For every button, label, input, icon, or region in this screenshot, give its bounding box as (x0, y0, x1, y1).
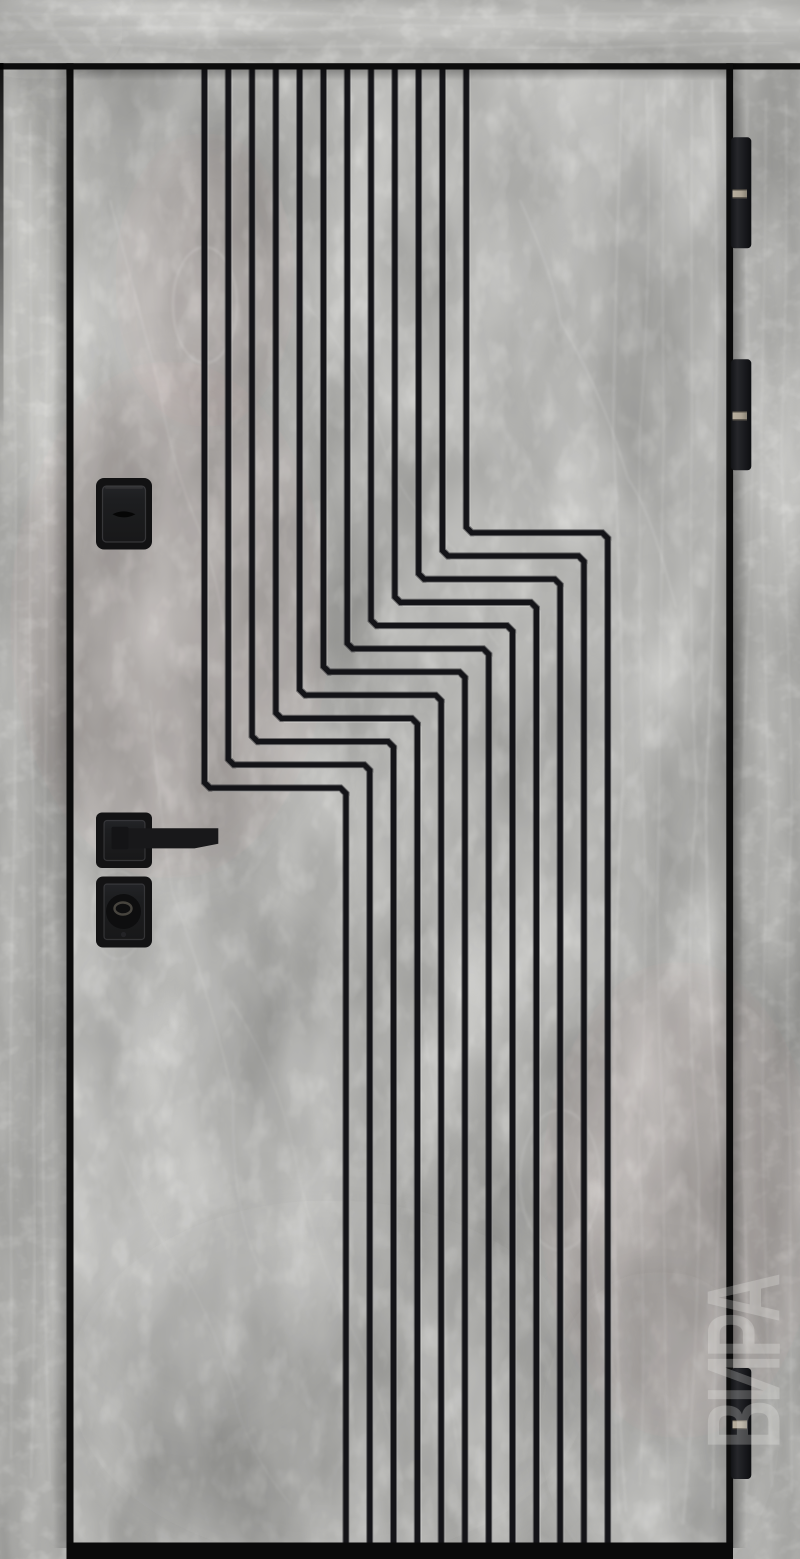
svg-text:ВИРА: ВИРА (685, 1274, 800, 1449)
